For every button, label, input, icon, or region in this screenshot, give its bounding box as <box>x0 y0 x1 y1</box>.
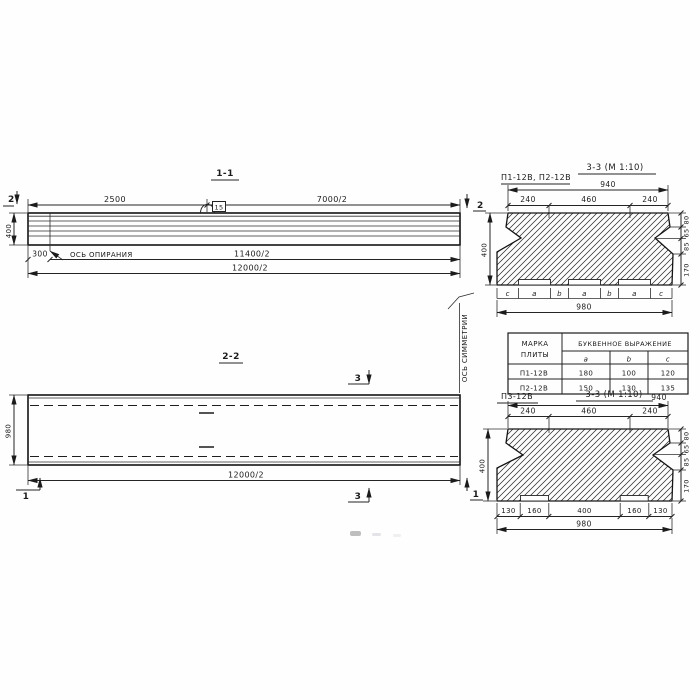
letter-a: a <box>582 290 587 298</box>
scan-smudge <box>393 534 401 537</box>
bottom-recess <box>619 280 651 286</box>
beam-outline <box>28 213 460 245</box>
dim-300: 300 <box>32 250 48 259</box>
dim-400: 400 <box>479 459 487 474</box>
plate-mark-label: П3-12В <box>501 392 533 401</box>
symmetry-axis-label: ОСЬ СИММЕТРИИ <box>461 314 469 382</box>
dim-2500: 2500 <box>104 195 126 204</box>
support-axis-label: ОСЬ ОПИРАНИЯ <box>70 251 133 259</box>
table-subcol-b: b <box>627 356 632 364</box>
dim-460: 460 <box>581 407 597 416</box>
dim-12000-2: 12000/2 <box>228 471 264 480</box>
blueprint-page: 1-1 2500 7000/2 2 2 15 400 <box>0 0 700 700</box>
row-mark: П1-12В <box>520 370 548 378</box>
plate-marks-label: П1-12В, П2-12В <box>501 173 571 182</box>
cut-marker-1-right: 1 <box>473 490 480 500</box>
dim-460: 460 <box>581 195 597 204</box>
letter-a: a <box>632 290 637 298</box>
dim-940: 940 <box>600 180 616 189</box>
bottom-recess <box>569 280 601 286</box>
section-3-3-bottom-view: П3-12В 3-3 (М 1:10) 940 240 460 240 <box>479 390 691 534</box>
scan-smudge <box>372 533 381 536</box>
dim-85: 85 <box>683 457 691 466</box>
dim-160: 160 <box>627 507 642 515</box>
table-header-mark: ПЛИТЫ <box>521 351 549 359</box>
dim-85: 85 <box>683 242 691 251</box>
dim-11400-2: 11400/2 <box>234 250 270 259</box>
row-value-c: 120 <box>661 370 676 378</box>
dim-980: 980 <box>576 303 592 312</box>
dim-980: 980 <box>5 424 13 439</box>
dim-240: 240 <box>642 407 658 416</box>
symmetry-axis-callout: ОСЬ СИММЕТРИИ <box>448 293 474 393</box>
dim-130: 130 <box>653 507 668 515</box>
cut-marker-3-top: 3 <box>355 374 362 384</box>
table-header-expression: БУКВЕННОЕ ВЫРАЖЕНИЕ <box>578 340 672 348</box>
scan-smudge <box>350 531 361 536</box>
table-row: П1-12В 180 100 120 <box>520 370 675 378</box>
dim-130: 130 <box>501 507 516 515</box>
cross-section-hatched <box>497 213 673 285</box>
cut-marker-1-left: 1 <box>23 492 30 502</box>
letter-b: b <box>607 290 612 298</box>
bottom-recess <box>620 496 648 502</box>
dim-170: 170 <box>683 263 691 277</box>
letter-c: c <box>506 290 510 298</box>
section-2-2-title: 2-2 <box>222 352 239 362</box>
cut-marker-3-bottom: 3 <box>355 492 362 502</box>
dim-170: 170 <box>683 479 691 493</box>
bottom-recess <box>519 280 551 286</box>
section-2-2-view: 2-2 3 3 980 12000/2 1 1 <box>5 352 484 502</box>
table-subcol-a: a <box>584 356 589 364</box>
leader-arrow-icon <box>50 251 63 260</box>
table-subcol-c: c <box>666 356 670 364</box>
section-3-3-title: 3-3 (М 1:10) <box>586 163 643 173</box>
row-value-c: 135 <box>661 385 676 393</box>
axis-flag-icon <box>448 293 474 309</box>
dim-940: 940 <box>651 393 667 402</box>
letter-c: c <box>659 290 663 298</box>
dim-980: 980 <box>576 520 592 529</box>
scan-artifact <box>350 531 401 537</box>
dim-12000-2: 12000/2 <box>232 264 268 273</box>
row-value-a: 180 <box>579 370 594 378</box>
dim-400: 400 <box>481 243 489 258</box>
row-value-b: 100 <box>622 370 637 378</box>
dim-240: 240 <box>520 407 536 416</box>
section-3-3-title: 3-3 (М 1:10) <box>585 390 642 400</box>
cut-marker-2-right: 2 <box>477 201 484 211</box>
dim-240: 240 <box>642 195 658 204</box>
dim-80: 80 <box>683 431 691 440</box>
hook-tag: 15 <box>214 204 223 212</box>
letter-b: b <box>557 290 562 298</box>
section-3-3-top-view: П1-12В, П2-12В 3-3 (М 1:10) 940 240 460 … <box>481 163 691 317</box>
dim-400: 400 <box>577 507 592 515</box>
section-1-1-view: 1-1 2500 7000/2 2 2 15 400 <box>3 169 486 278</box>
dim-7000-2: 7000/2 <box>317 195 348 204</box>
section-1-1-title: 1-1 <box>216 169 233 179</box>
dim-65: 65 <box>683 228 691 237</box>
dim-65: 65 <box>683 444 691 453</box>
plate-table: МАРКА ПЛИТЫ БУКВЕННОЕ ВЫРАЖЕНИЕ a b c П1… <box>508 333 688 394</box>
cross-section-hatched <box>497 429 673 501</box>
table-header-mark: МАРКА <box>522 340 549 348</box>
dim-160: 160 <box>527 507 542 515</box>
drawing-svg: 1-1 2500 7000/2 2 2 15 400 <box>0 0 700 700</box>
letter-a: a <box>532 290 537 298</box>
bottom-recess <box>521 496 549 502</box>
cut-marker-2-left: 2 <box>8 195 15 205</box>
dim-400: 400 <box>5 224 13 239</box>
dim-240: 240 <box>520 195 536 204</box>
dim-80: 80 <box>683 215 691 224</box>
